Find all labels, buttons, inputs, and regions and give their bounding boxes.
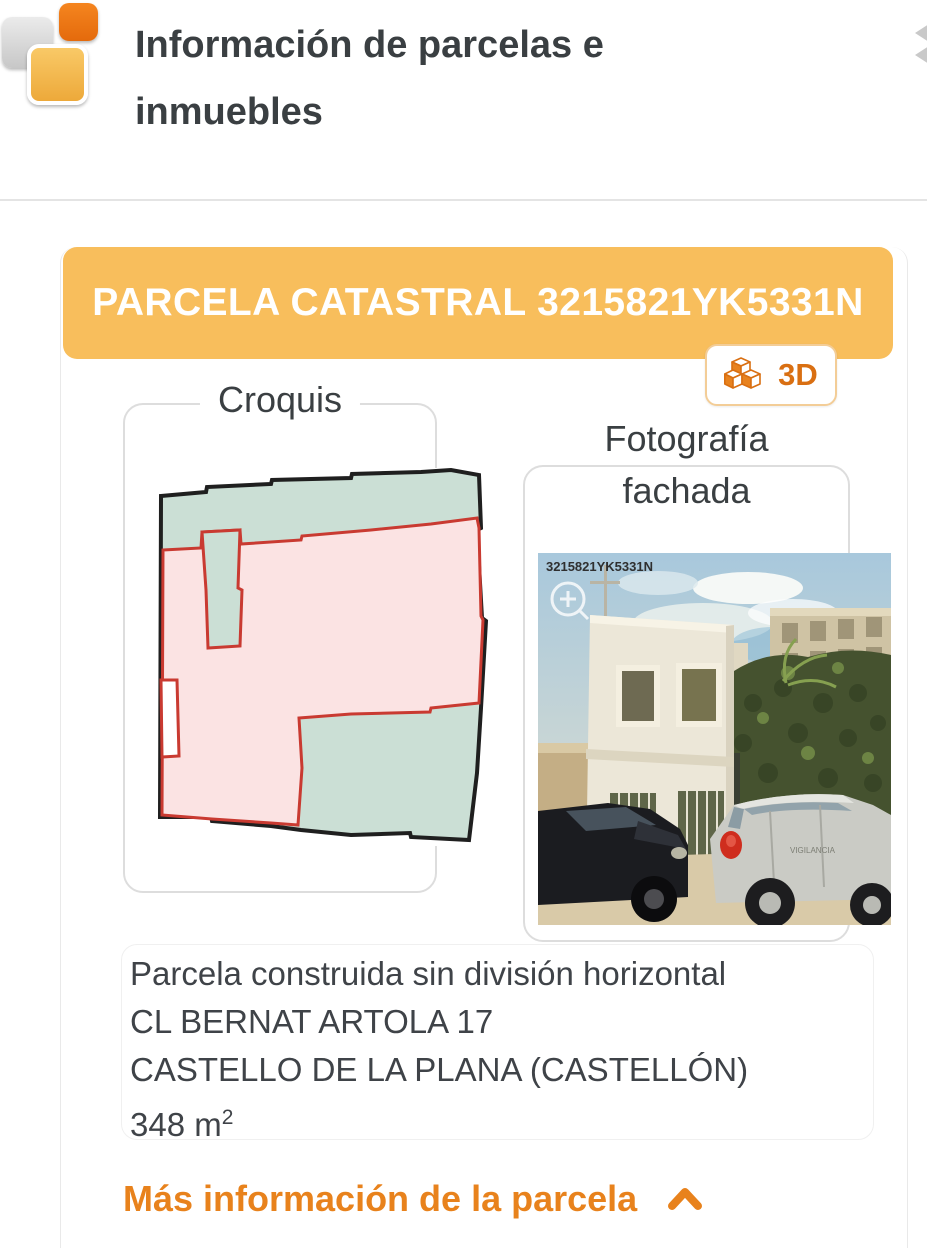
facade-legend-line2: fachada (610, 470, 762, 511)
page-title: Información de parcelas einmuebles (135, 12, 855, 146)
parcel-card: PARCELA CATASTRAL 3215821YK5331N (60, 247, 908, 1248)
photo-watermark: 3215821YK5331N (546, 559, 653, 574)
parcel-banner: PARCELA CATASTRAL 3215821YK5331N (63, 247, 893, 359)
facade-photo-legend: Fotografía fachada (592, 413, 780, 517)
more-info-link[interactable]: Más información de la parcela (123, 1178, 705, 1220)
view-3d-label: 3D (778, 357, 818, 393)
cubes-3d-icon (724, 356, 768, 394)
chevron-left-icon (915, 46, 927, 64)
header-divider (0, 199, 927, 201)
logo-square-amber (27, 44, 88, 105)
chevron-left-icon (915, 24, 927, 42)
more-info-label: Más información de la parcela (123, 1178, 637, 1220)
logo-square-orange (59, 3, 98, 41)
parcel-croquis-sketch (151, 468, 497, 846)
collapse-chevrons-icon[interactable] (915, 24, 927, 68)
facade-photo[interactable]: VIGILANCIA 3215821YK5331N (538, 553, 891, 925)
vehicle-text: VIGILANCIA (790, 846, 836, 855)
parcel-type-text: Parcela construida sin división horizont… (130, 950, 873, 998)
area-exponent: 2 (222, 1106, 234, 1129)
app-window: Información de parcelas einmuebles PARCE… (0, 0, 927, 1248)
view-3d-button[interactable]: 3D (705, 344, 837, 406)
facade-legend-line1: Fotografía (592, 418, 780, 459)
parcel-banner-title: PARCELA CATASTRAL 3215821YK5331N (92, 281, 863, 325)
page-title-line1: Información de parcelas e (135, 24, 604, 66)
parcel-area-text: 348 m2 (130, 1094, 873, 1149)
parcel-address-text: CL BERNAT ARTOLA 17 (130, 998, 873, 1046)
catastro-logo (0, 0, 110, 110)
parcel-details: Parcela construida sin división horizont… (121, 944, 874, 1140)
croquis-legend: Croquis (200, 379, 360, 421)
parcel-city-text: CASTELLO DE LA PLANA (CASTELLÓN) (130, 1046, 873, 1094)
chevron-up-icon (665, 1185, 705, 1213)
page-title-line2: inmuebles (135, 91, 323, 133)
area-value: 348 m (130, 1106, 222, 1143)
